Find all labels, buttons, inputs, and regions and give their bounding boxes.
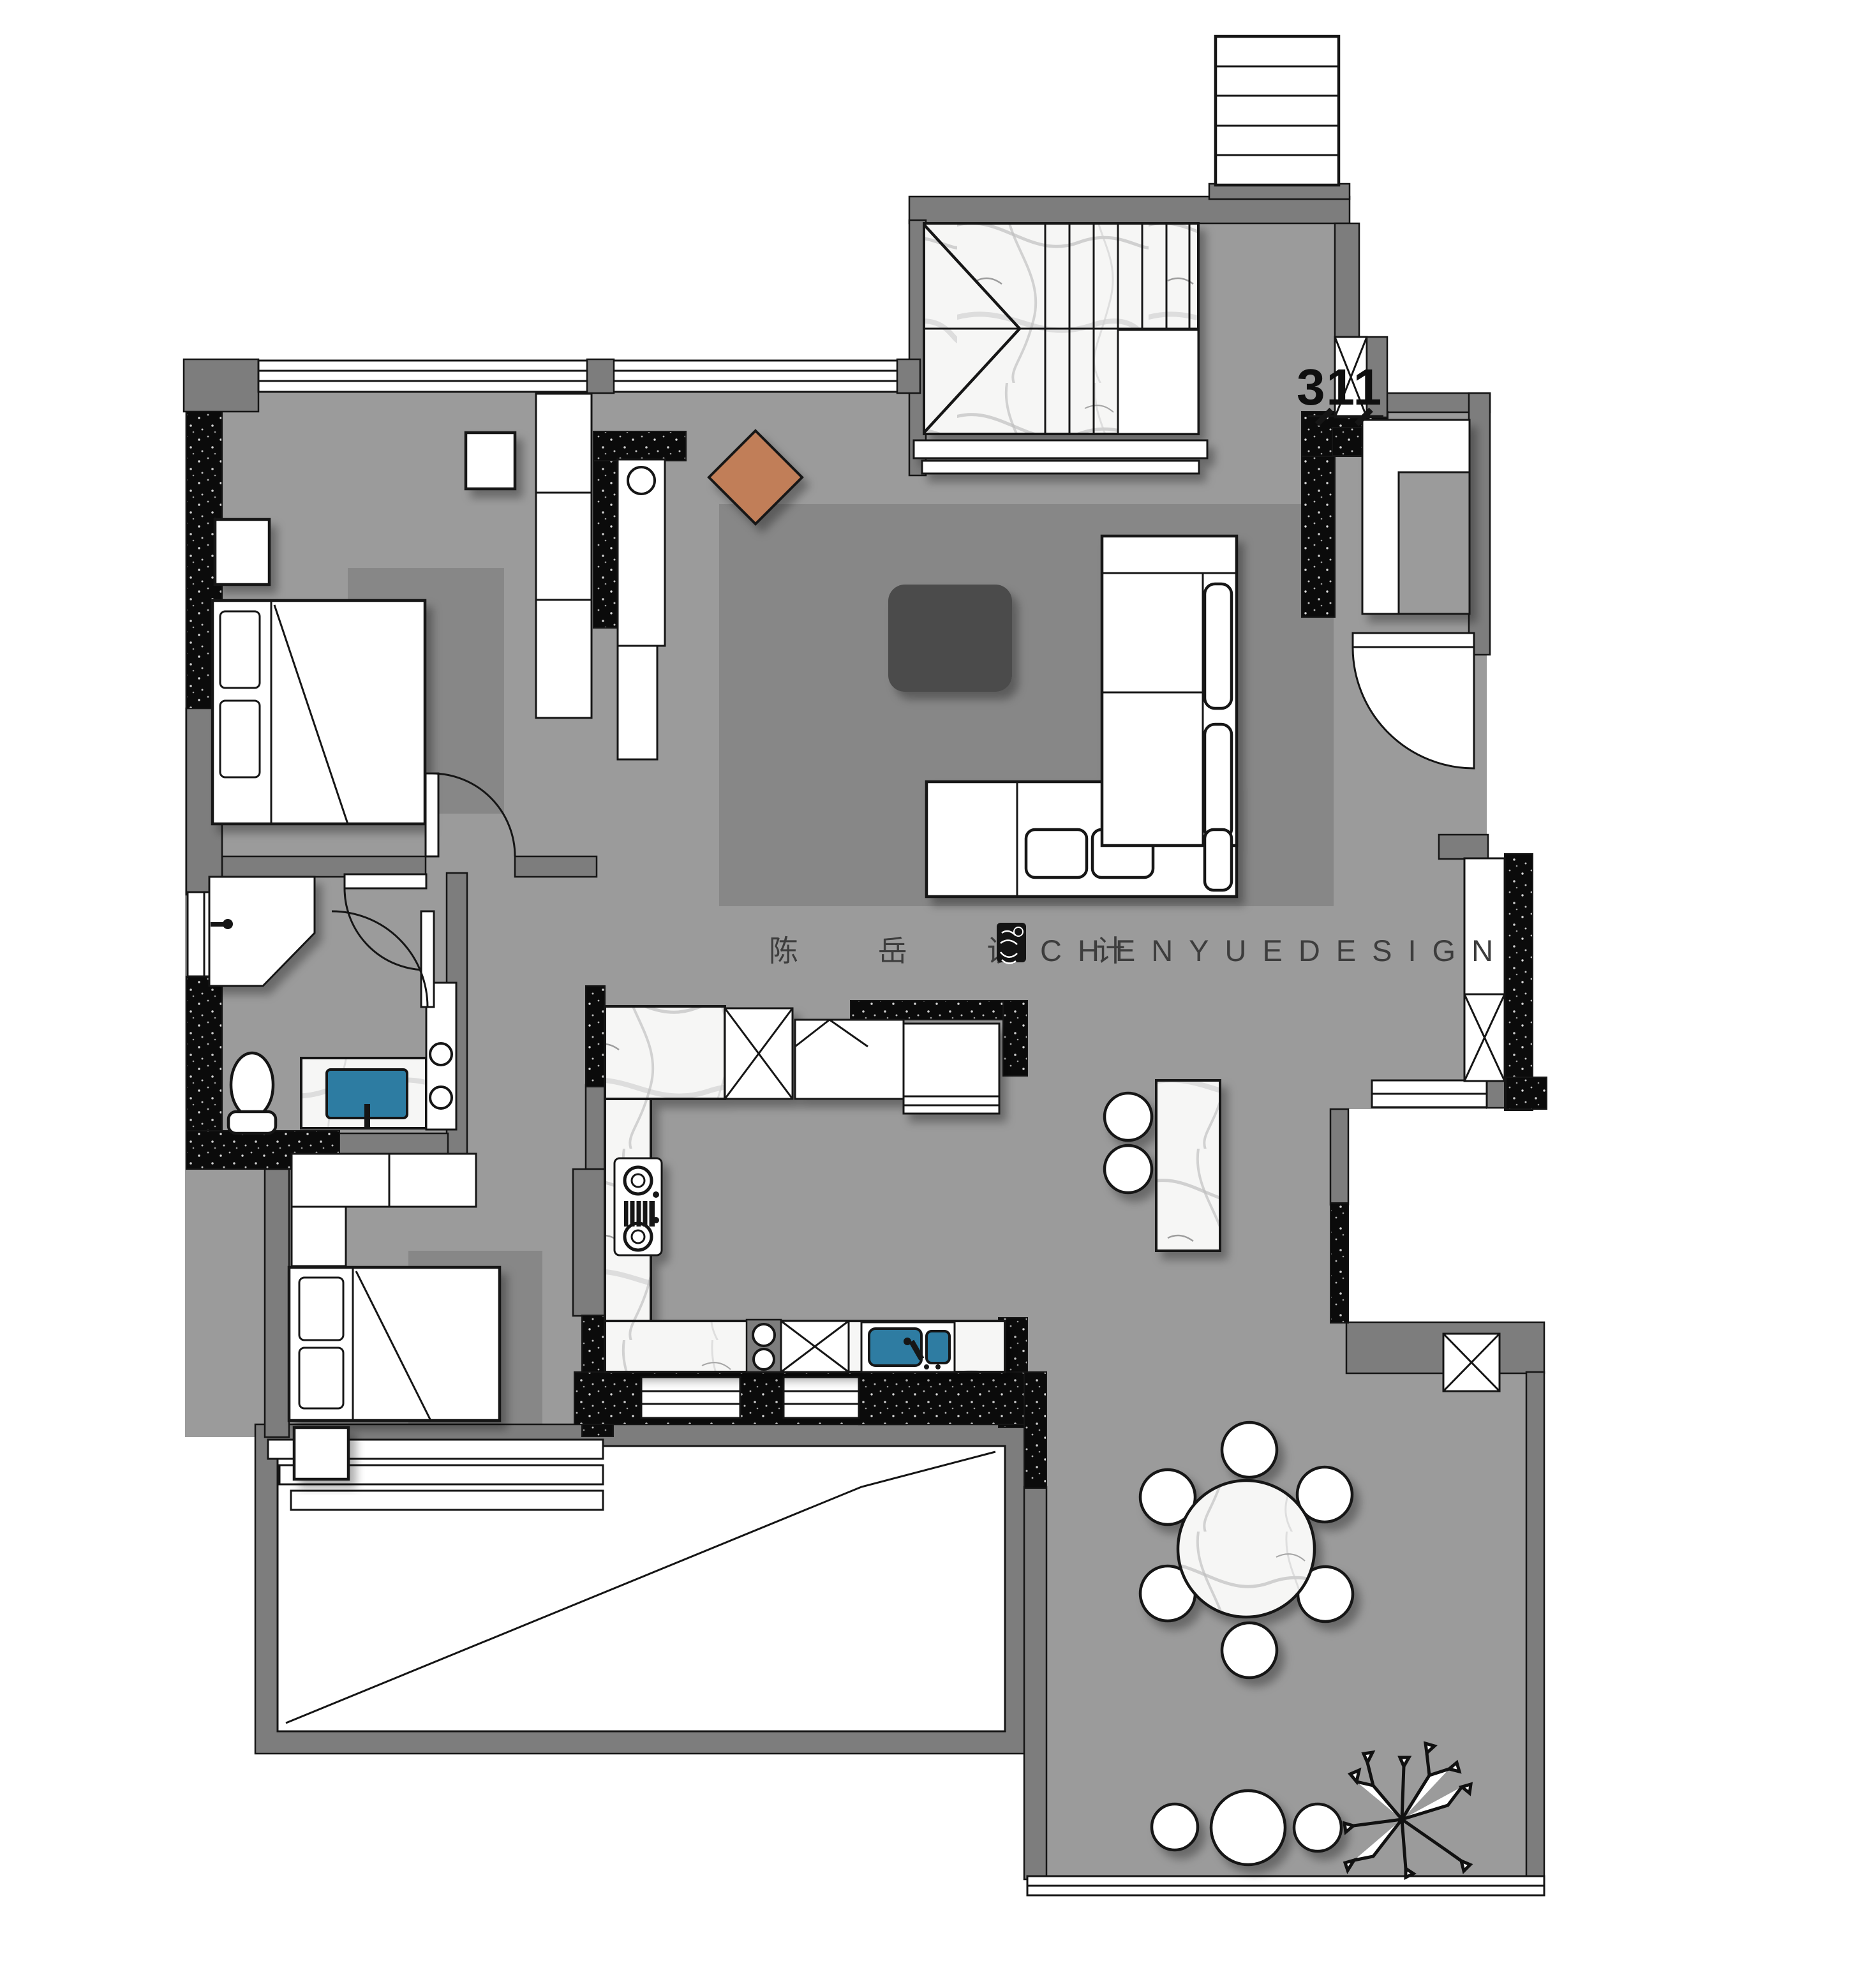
kitchen-window <box>641 1377 740 1418</box>
plant-pot-icon <box>628 467 655 494</box>
wall-segment <box>573 1169 605 1316</box>
kitchen-window <box>784 1377 859 1418</box>
wall-hatched <box>1505 854 1533 1110</box>
wall-segment <box>1469 393 1490 655</box>
tall-cabinet <box>1464 858 1505 994</box>
sink-dot <box>935 1364 941 1369</box>
toilet-icon <box>228 1053 276 1133</box>
void-right-open-area <box>1348 1109 1551 1322</box>
stove-knob <box>653 1191 659 1198</box>
wall-hatched <box>586 986 605 1087</box>
entry-nook <box>1362 420 1470 614</box>
wall-segment <box>1330 1109 1348 1205</box>
pillow <box>220 701 260 777</box>
wall-segment <box>909 197 1350 223</box>
bar-stool <box>1105 1093 1152 1140</box>
balcony-rail-band <box>291 1491 603 1510</box>
window-mullion <box>587 359 614 393</box>
sofa-back-cushion <box>1205 584 1232 708</box>
kitchen-sink-icon <box>861 1322 955 1372</box>
planter-circle <box>1211 1791 1285 1865</box>
window-band-top <box>258 361 898 392</box>
hob-circle <box>754 1349 774 1369</box>
dining-chair <box>1222 1623 1277 1678</box>
gas-stove-icon <box>614 1158 662 1255</box>
planter-circle <box>1152 1804 1198 1850</box>
bed-double <box>212 600 425 824</box>
hob-circle <box>753 1324 775 1346</box>
right-corridor-cabinets <box>1464 858 1505 1081</box>
floor-plan-page: 311 <box>0 0 1876 1984</box>
wall-hatched <box>593 461 618 628</box>
wall-segment <box>1335 223 1359 338</box>
nightstand <box>466 433 515 489</box>
knob-icon <box>430 1043 452 1065</box>
floor-plan-drawing: 311 <box>0 0 1876 1984</box>
dining-table-round <box>1178 1481 1314 1617</box>
desk <box>292 1154 476 1207</box>
knob-icon <box>430 1087 452 1108</box>
stair-rail <box>922 461 1199 474</box>
sink-basin-small <box>927 1331 949 1363</box>
pillow <box>220 611 260 688</box>
pillow <box>299 1348 343 1408</box>
wall-hatched <box>1330 1203 1348 1323</box>
shower-arm <box>211 922 225 927</box>
fridge <box>904 1024 999 1114</box>
pillow <box>299 1278 343 1340</box>
toilet-tank <box>228 1112 276 1133</box>
wall-hatched <box>1302 456 1335 617</box>
stair-rail <box>914 440 1207 458</box>
cabinet <box>292 1207 346 1266</box>
wall-segment <box>1024 1487 1046 1879</box>
exterior-staircase <box>1216 36 1339 185</box>
coffee-table <box>888 585 1012 692</box>
wall-hatched <box>851 1001 1004 1020</box>
wardrobe <box>536 394 592 718</box>
dining-chair <box>1222 1422 1277 1477</box>
sofa-cushion <box>1026 830 1087 877</box>
wall-hatched <box>593 431 686 461</box>
toilet-bowl <box>231 1053 273 1117</box>
door-leaf <box>345 874 426 888</box>
sofa-back-cushion <box>1205 830 1232 890</box>
wall-cabinet <box>795 1020 904 1099</box>
tv-partition <box>618 459 665 759</box>
wall-segment <box>184 359 258 412</box>
vanity <box>301 1058 426 1128</box>
shower-rose <box>223 919 233 929</box>
bed-double <box>289 1267 500 1421</box>
wall-segment <box>515 856 597 877</box>
nook-inner-floor <box>1399 472 1470 614</box>
door-leaf <box>1353 633 1474 647</box>
void-open-area <box>278 1446 1005 1731</box>
wall-hatched <box>1024 1372 1046 1488</box>
wall-segment <box>586 1085 605 1169</box>
window-mullion <box>897 359 920 393</box>
sink-dot <box>924 1364 929 1369</box>
wall-segment <box>1439 835 1488 859</box>
wall-hatched <box>1003 1001 1027 1076</box>
stove-knob <box>653 1217 659 1223</box>
watermark-english-text: CHENYUEDESIGN <box>1040 934 1509 967</box>
door-leaf <box>421 911 434 1007</box>
design-seal-icon <box>997 923 1026 964</box>
low-cabinet <box>618 646 657 759</box>
wall-segment <box>265 1169 289 1437</box>
island-counter <box>1156 1080 1220 1251</box>
door-leaf <box>426 773 438 856</box>
bar-stool <box>1105 1145 1152 1193</box>
nightstand <box>215 519 269 585</box>
nightstand <box>294 1428 348 1479</box>
wall-segment <box>1526 1372 1544 1877</box>
faucet-icon <box>364 1104 370 1127</box>
terrace-floor <box>1027 1372 1544 1877</box>
wall-hatched <box>186 976 222 1133</box>
faucet-base <box>904 1338 911 1345</box>
wall-hatched <box>1506 1077 1547 1109</box>
stair-landing <box>1118 330 1198 434</box>
stair-flight <box>1216 36 1339 185</box>
unit-number-label: 311 <box>1297 359 1383 415</box>
sofa-back-cushion <box>1205 724 1232 839</box>
planter-circle <box>1294 1804 1341 1851</box>
counter-top <box>605 1006 725 1099</box>
